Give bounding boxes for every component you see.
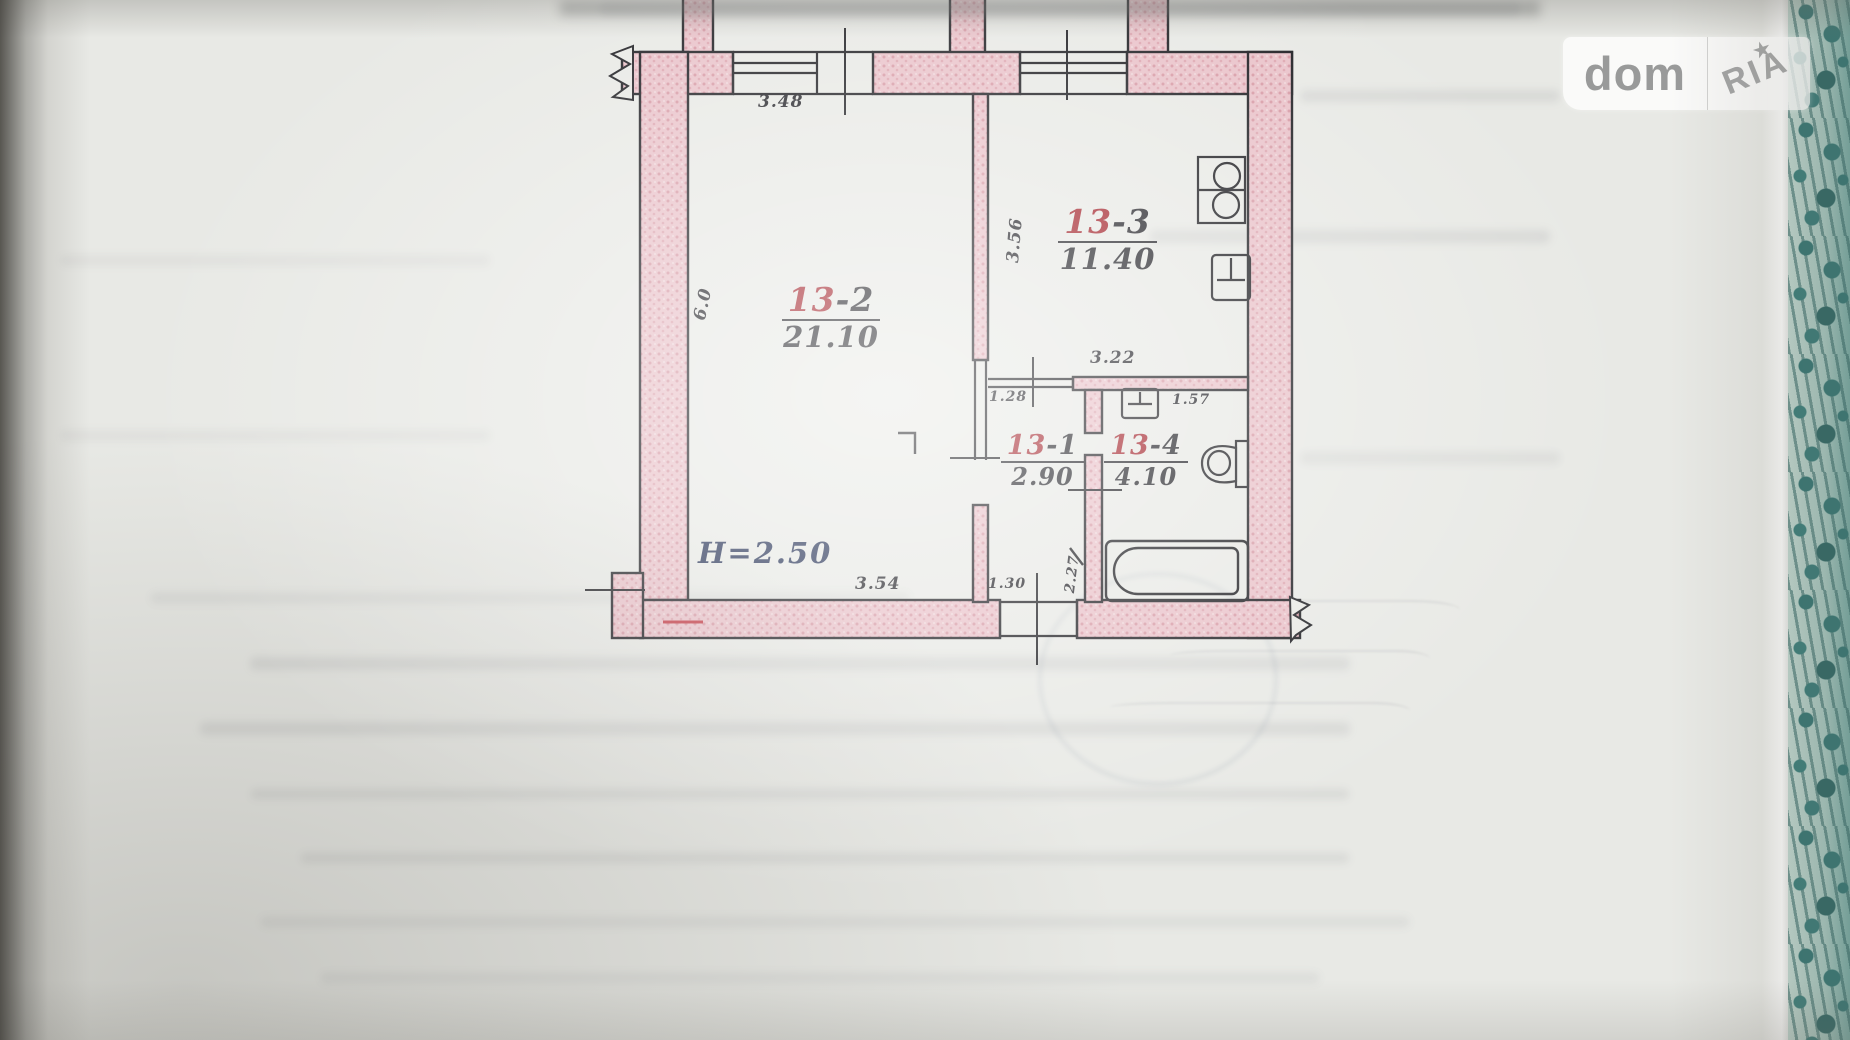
room-label-13-4: 13-4 4.10 <box>1104 432 1188 491</box>
wall-bottom-left-step <box>612 573 643 638</box>
bath-sink-icon <box>1122 389 1158 418</box>
dim-hall-top: 1.28 <box>989 389 1027 405</box>
fabric-background <box>1788 0 1850 1040</box>
wall-bottom-left <box>640 600 1000 638</box>
room-area: 2.90 <box>995 463 1090 491</box>
floor-plan-drawing <box>0 0 1850 1040</box>
wall-top-middle <box>873 52 1020 94</box>
wall-hall-bath-upper <box>1085 390 1102 433</box>
toilet-icon <box>1202 441 1248 487</box>
room-number: 13-1 <box>1001 432 1085 463</box>
wall-living-hall <box>973 505 988 602</box>
wall-kitchen-bath <box>1073 377 1248 390</box>
dim-window-top: 3.48 <box>758 92 803 112</box>
room-number: 13-4 <box>1104 432 1188 463</box>
door-leaf-living <box>898 433 915 454</box>
room-number: 13-3 <box>1058 205 1157 243</box>
entry-door-opening <box>1000 600 1077 638</box>
room-area: 11.40 <box>1045 243 1170 276</box>
dom-ria-watermark: dom ★ RIA <box>1563 37 1810 110</box>
stove-icon <box>1198 157 1245 223</box>
wall-living-kitchen <box>973 94 988 360</box>
bathtub-icon <box>1106 541 1248 601</box>
room-label-13-1: 13-1 2.90 <box>995 432 1090 491</box>
dim-living-bottom: 3.54 <box>855 574 900 594</box>
wall-right <box>1248 52 1292 638</box>
room-area: 21.10 <box>762 321 900 354</box>
dim-bath-top: 1.57 <box>1172 392 1210 408</box>
room-label-13-3: 13-3 11.40 <box>1045 205 1170 276</box>
watermark-ria-text: RIA <box>1717 42 1794 103</box>
wall-left <box>640 52 688 600</box>
wall-living-hall-thin <box>973 360 988 460</box>
dim-entry-door: 1.30 <box>988 576 1026 592</box>
room-label-13-2: 13-2 21.10 <box>762 283 900 354</box>
ceiling-height-note: H=2.50 <box>698 536 832 570</box>
room-number: 13-2 <box>782 283 881 321</box>
dim-kitchen-side: 3.56 <box>1003 217 1027 264</box>
watermark-right-cell: ★ RIA <box>1708 37 1810 110</box>
kitchen-sink-icon <box>1212 255 1250 300</box>
wall-break-mark-top-left <box>610 46 633 100</box>
watermark-dom-text: dom <box>1584 50 1686 97</box>
dim-kitchen-bottom: 3.22 <box>1090 348 1135 368</box>
window-kitchen <box>1020 52 1127 94</box>
watermark-left-cell: dom <box>1563 37 1708 110</box>
floor-plan-photo: 13-2 21.10 13-3 11.40 13-1 2.90 13-4 4.1… <box>0 0 1850 1040</box>
wall-bottom-right <box>1077 600 1300 638</box>
window-living <box>733 52 817 94</box>
room-area: 4.10 <box>1104 463 1188 491</box>
bleed-smudge-top <box>560 0 1540 16</box>
